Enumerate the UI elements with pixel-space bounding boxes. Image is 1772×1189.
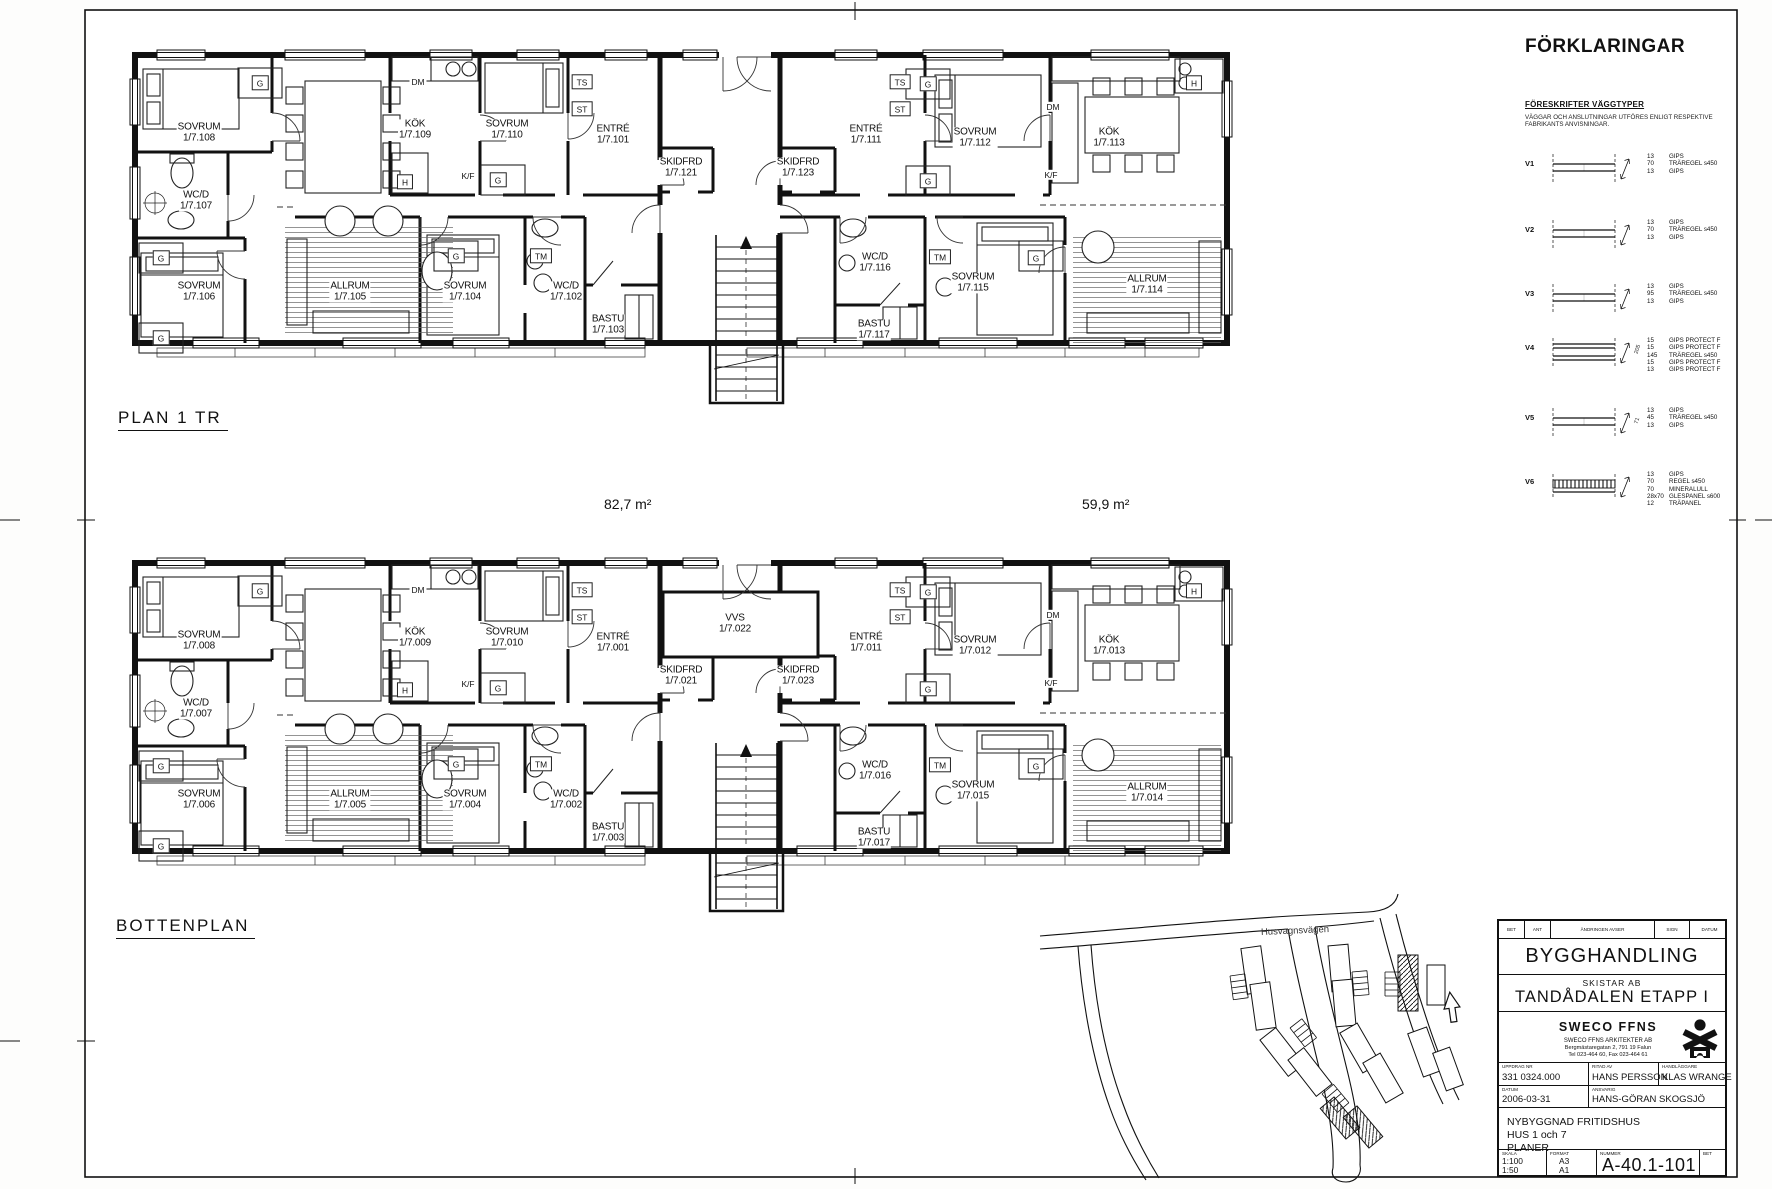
- handlaggare-label: HANDLÄGGARE: [1662, 1064, 1697, 1069]
- room-number: 1/7.001: [597, 643, 630, 654]
- wall-dim: [1636, 223, 1639, 233]
- room-name: WC/D: [180, 190, 212, 201]
- wall-layers: 15GIPS PROTECT F15GIPS PROTECT F145TRÄRE…: [1647, 334, 1720, 373]
- description-line2: HUS 1 och 7: [1507, 1129, 1640, 1142]
- nummer-value: A-40.1-101: [1602, 1155, 1696, 1176]
- room-label: ALLRUM1/7.005: [329, 789, 370, 810]
- room-name: BASTU: [858, 827, 890, 838]
- room-number: 1/7.117: [858, 330, 890, 341]
- wall-layers: 13GIPS45TRÄREGEL s45013GIPS: [1647, 404, 1717, 429]
- wall-type-id: V4: [1525, 334, 1545, 352]
- room-name: SKIDFRD: [660, 157, 703, 168]
- legend-section-title: FÖRESKRIFTER VÄGGTYPER: [1525, 100, 1644, 109]
- firm-name: SWECO FFNS ARKITEKTER AB: [1539, 1038, 1677, 1044]
- legend-note: VÄGGAR OCH ANSLUTNINGAR UTFÖRES ENLIGT R…: [1525, 114, 1713, 128]
- room-name: WC/D: [550, 789, 582, 800]
- fixture-tag-g: G: [252, 75, 269, 90]
- project-row: SKISTAR AB TANDÅDALEN ETAPP I: [1499, 975, 1725, 1012]
- room-label: WC/D1/7.102: [549, 281, 583, 302]
- room-name: BASTU: [858, 319, 890, 330]
- wall-type-row: V213GIPS70TRÄREGEL s45013GIPS: [1525, 216, 1717, 254]
- ansvarig-value: HANS-GÖRAN SKOGSJÖ: [1592, 1094, 1705, 1105]
- fixture-tag-tm: TM: [929, 249, 951, 264]
- room-label: WC/D1/7.107: [179, 190, 213, 211]
- wall-dim: [1636, 475, 1639, 485]
- uppdrag-value: 331 0324.000: [1502, 1072, 1560, 1083]
- room-name: SKIDFRD: [777, 665, 820, 676]
- architectural-drawing-sheet: { "plans": [ { "title": "PLAN 1 TR", "ro…: [0, 0, 1772, 1184]
- room-label: BASTU1/7.003: [591, 822, 625, 843]
- room-number: 1/7.002: [550, 800, 582, 811]
- room-number: 1/7.108: [178, 133, 221, 144]
- wall-section-symbol: [1545, 280, 1633, 318]
- room-label: SKIDFRD1/7.023: [776, 665, 821, 686]
- room-number: 1/7.017: [858, 838, 890, 849]
- fixture-tag-g: G: [920, 76, 937, 91]
- fixture-tag-dm: DM: [1044, 610, 1061, 620]
- fixture-tag-dm: DM: [409, 585, 426, 595]
- fixture-tag-tm: TM: [530, 756, 552, 771]
- room-name: KÖK: [399, 119, 431, 130]
- wall-type-row: V113GIPS70TRÄREGEL s45013GIPS: [1525, 150, 1717, 188]
- room-name: SOVRUM: [954, 635, 997, 646]
- fixture-tag-g: G: [920, 681, 937, 696]
- fixture-tag-kf: K/F: [459, 679, 476, 689]
- wall-dim: 205: [1634, 343, 1643, 354]
- room-number: 1/7.116: [859, 263, 890, 274]
- room-number: 1/7.101: [597, 135, 630, 146]
- fixture-tag-g: G: [920, 584, 937, 599]
- room-name: SKIDFRD: [660, 665, 703, 676]
- room-label: BASTU1/7.103: [591, 314, 625, 335]
- area-right: 59,9 m²: [1082, 496, 1129, 512]
- room-name: SOVRUM: [178, 630, 221, 641]
- wall-type-id: V2: [1525, 216, 1545, 234]
- room-name: KÖK: [399, 627, 431, 638]
- room-name: WC/D: [180, 698, 212, 709]
- wall-layer: 12TRÄPANEL: [1647, 500, 1720, 507]
- room-label: ENTRÉ1/7.111: [849, 124, 884, 145]
- fixture-tag-h: H: [1186, 583, 1202, 598]
- room-name: ENTRÉ: [850, 124, 883, 135]
- stage-label: BYGGHANDLING: [1499, 939, 1725, 968]
- room-name: BASTU: [592, 314, 624, 325]
- rev-col-datum: DATUM: [1702, 927, 1718, 932]
- fixture-tag-tm: TM: [530, 248, 552, 263]
- wall-layer: 13GIPS: [1647, 219, 1717, 226]
- rev-col-sign: SIGN: [1666, 927, 1677, 932]
- room-label: KÖK1/7.013: [1092, 635, 1126, 656]
- room-number: 1/7.104: [444, 292, 487, 303]
- firm-row: SWECO FFNS SWECO FFNS ARKITEKTER AB Berg…: [1499, 1012, 1725, 1063]
- ritad-value: HANS PERSSON: [1592, 1072, 1668, 1083]
- rev-col-andringen: ÄNDRINGEN AVSER: [1581, 927, 1625, 932]
- room-name: SOVRUM: [486, 119, 529, 130]
- fixture-tag-g: G: [448, 756, 465, 771]
- wall-layer: 15GIPS PROTECT F: [1647, 337, 1720, 344]
- room-label: SOVRUM1/7.012: [953, 635, 998, 656]
- wall-type-row: V613GIPS70REGEL s45070MINERALULL28x70GLE…: [1525, 468, 1720, 507]
- wall-section-symbol: [1545, 150, 1633, 188]
- room-name: SOVRUM: [178, 122, 221, 133]
- room-label: KÖK1/7.109: [398, 119, 432, 140]
- room-label: SKIDFRD1/7.121: [659, 157, 704, 178]
- fixture-tag-st: ST: [572, 101, 593, 116]
- room-label: SKIDFRD1/7.021: [659, 665, 704, 686]
- wall-layer: 28x70GLESPANEL s600: [1647, 493, 1720, 500]
- room-label: ALLRUM1/7.114: [1126, 274, 1167, 295]
- legend-note-line2: FABRIKANTS ANVISNINGAR.: [1525, 121, 1713, 128]
- room-number: 1/7.106: [178, 292, 221, 303]
- stage-row: BYGGHANDLING: [1499, 939, 1725, 975]
- revision-header-row: BET ANT ÄNDRINGEN AVSER SIGN DATUM: [1499, 921, 1725, 939]
- room-name: ALLRUM: [330, 281, 369, 292]
- room-name: SOVRUM: [952, 780, 995, 791]
- skala-value-2: 1:50: [1502, 1166, 1523, 1175]
- room-name: ALLRUM: [330, 789, 369, 800]
- room-name: SOVRUM: [954, 127, 997, 138]
- room-number: 1/7.114: [1127, 285, 1166, 296]
- plan1-title: PLAN 1 TR: [118, 408, 228, 431]
- room-name: ALLRUM: [1127, 274, 1166, 285]
- wall-layer: 70TRÄREGEL s450: [1647, 160, 1717, 167]
- fields-row-2: DATUM 2006-03-31 ANSVARIG HANS-GÖRAN SKO…: [1499, 1086, 1725, 1108]
- wall-layer: 13GIPS: [1647, 283, 1717, 290]
- wall-dim: [1636, 157, 1639, 167]
- room-label: ALLRUM1/7.014: [1126, 782, 1167, 803]
- fixture-tag-kf: K/F: [459, 171, 476, 181]
- room-label: BASTU1/7.017: [857, 827, 891, 848]
- fixture-tag-g: G: [448, 248, 465, 263]
- wall-section-symbol: [1545, 334, 1633, 372]
- room-number: 1/7.022: [719, 624, 751, 635]
- wall-layers: 13GIPS70REGEL s45070MINERALULL28x70GLESP…: [1647, 468, 1720, 507]
- room-name: ENTRÉ: [597, 124, 630, 135]
- fixture-tag-g: G: [153, 838, 170, 853]
- wall-layer: 95TRÄREGEL s450: [1647, 290, 1717, 297]
- wall-layer: 70TRÄREGEL s450: [1647, 226, 1717, 233]
- wall-dim: 71: [1634, 413, 1643, 424]
- room-number: 1/7.110: [486, 130, 529, 141]
- wall-layers: 13GIPS70TRÄREGEL s45013GIPS: [1647, 216, 1717, 241]
- room-number: 1/7.103: [592, 325, 624, 336]
- room-name: KÖK: [1093, 635, 1125, 646]
- datum-value: 2006-03-31: [1502, 1094, 1551, 1105]
- room-name: SOVRUM: [444, 789, 487, 800]
- fixture-tag-g: G: [153, 250, 170, 265]
- room-label: SOVRUM1/7.006: [177, 789, 222, 810]
- room-number: 1/7.107: [180, 201, 212, 212]
- fixture-tag-ts: TS: [572, 582, 593, 597]
- wall-layer: 13GIPS PROTECT F: [1647, 366, 1720, 373]
- wall-layers: 13GIPS70TRÄREGEL s45013GIPS: [1647, 150, 1717, 175]
- room-number: 1/7.004: [444, 800, 487, 811]
- wall-dim: [1636, 287, 1639, 297]
- room-number: 1/7.111: [850, 135, 883, 146]
- room-name: VVS: [719, 613, 751, 624]
- fixture-tag-dm: DM: [409, 77, 426, 87]
- room-label: WC/D1/7.002: [549, 789, 583, 810]
- room-number: 1/7.014: [1127, 793, 1166, 804]
- project-name: TANDÅDALEN ETAPP I: [1499, 988, 1725, 1007]
- room-number: 1/7.015: [952, 791, 995, 802]
- firm-address: Bergmästaregatan 2, 791 19 Falun: [1539, 1045, 1677, 1051]
- fixture-tag-g: G: [1028, 758, 1045, 773]
- fixture-tag-st: ST: [890, 101, 911, 116]
- room-name: SKIDFRD: [777, 157, 820, 168]
- room-number: 1/7.006: [178, 800, 221, 811]
- wall-type-row: V420515GIPS PROTECT F15GIPS PROTECT F145…: [1525, 334, 1720, 373]
- firm-phone: Tel 023-464 60, Fax 023-464 61: [1539, 1052, 1677, 1058]
- room-label: SOVRUM1/7.106: [177, 281, 222, 302]
- wall-layer: 15GIPS PROTECT F: [1647, 359, 1720, 366]
- fixture-tag-kf: K/F: [1042, 170, 1059, 180]
- room-name: BASTU: [592, 822, 624, 833]
- wall-layer: 13GIPS: [1647, 298, 1717, 305]
- room-label: ENTRÉ1/7.011: [849, 632, 884, 653]
- ansvarig-label: ANSVARIG: [1592, 1087, 1615, 1092]
- fixture-tag-st: ST: [572, 609, 593, 624]
- firm-logo-text: SWECO FFNS: [1539, 1020, 1677, 1034]
- room-label: VVS1/7.022: [718, 613, 752, 634]
- wall-section-symbol: [1545, 216, 1633, 254]
- fixture-tag-h: H: [397, 174, 413, 189]
- legend-note-line1: VÄGGAR OCH ANSLUTNINGAR UTFÖRES ENLIGT R…: [1525, 114, 1713, 121]
- wall-type-id: V6: [1525, 468, 1545, 486]
- room-name: KÖK: [1093, 127, 1124, 138]
- room-number: 1/7.005: [330, 800, 369, 811]
- rev-col-bet: BET: [1507, 927, 1516, 932]
- sweco-logo-icon: [1680, 1018, 1720, 1060]
- rev-col-ant: ANT: [1533, 927, 1542, 932]
- room-number: 1/7.007: [180, 709, 212, 720]
- wall-layer: 13GIPS: [1647, 168, 1717, 175]
- room-name: WC/D: [859, 252, 890, 263]
- fixture-tag-g: G: [153, 330, 170, 345]
- fixture-tag-dm: DM: [1044, 102, 1061, 112]
- room-number: 1/7.112: [954, 138, 997, 149]
- bet-label: BET: [1703, 1151, 1712, 1156]
- room-label: SOVRUM1/7.115: [951, 272, 996, 293]
- wall-section-symbol: [1545, 404, 1633, 442]
- wall-type-id: V3: [1525, 280, 1545, 298]
- room-label: KÖK1/7.113: [1092, 127, 1125, 148]
- room-number: 1/7.009: [399, 638, 431, 649]
- fixture-tag-tm: TM: [929, 757, 951, 772]
- room-name: ENTRÉ: [850, 632, 883, 643]
- room-name: SOVRUM: [444, 281, 487, 292]
- fixture-tag-g: G: [1028, 250, 1045, 265]
- room-number: 1/7.016: [859, 771, 891, 782]
- description-row: NYBYGGNAD FRITIDSHUS HUS 1 och 7 PLANER: [1499, 1108, 1725, 1150]
- fixture-tag-ts: TS: [890, 582, 911, 597]
- wall-layers: 13GIPS95TRÄREGEL s45013GIPS: [1647, 280, 1717, 305]
- room-name: SOVRUM: [952, 272, 995, 283]
- room-name: SOVRUM: [486, 627, 529, 638]
- room-name: ENTRÉ: [597, 632, 630, 643]
- room-label: WC/D1/7.007: [179, 698, 213, 719]
- fixture-tag-g: G: [252, 583, 269, 598]
- client-name: SKISTAR AB: [1499, 975, 1725, 988]
- wall-type-id: V5: [1525, 404, 1545, 422]
- room-number: 1/7.011: [850, 643, 883, 654]
- fixture-tag-g: G: [490, 172, 507, 187]
- room-label: SOVRUM1/7.108: [177, 122, 222, 143]
- title-block: BET ANT ÄNDRINGEN AVSER SIGN DATUM BYGGH…: [1497, 919, 1727, 1177]
- room-number: 1/7.021: [660, 676, 703, 687]
- wall-layer: 13GIPS: [1647, 234, 1717, 241]
- room-label: SOVRUM1/7.112: [953, 127, 998, 148]
- wall-layer: 145TRÄREGEL s450: [1647, 352, 1720, 359]
- handlaggare-value: KLAS WRANGE: [1662, 1072, 1732, 1083]
- room-label: SOVRUM1/7.010: [485, 627, 530, 648]
- room-number: 1/7.115: [952, 283, 995, 294]
- wall-layer: 15GIPS PROTECT F: [1647, 344, 1720, 351]
- wall-layer: 13GIPS: [1647, 407, 1717, 414]
- uppdrag-label: UPPDRAG NR: [1502, 1064, 1533, 1069]
- room-label: ENTRÉ1/7.001: [596, 632, 631, 653]
- room-number: 1/7.109: [399, 130, 431, 141]
- room-name: SOVRUM: [178, 281, 221, 292]
- room-number: 1/7.102: [550, 292, 582, 303]
- room-number: 1/7.023: [777, 676, 820, 687]
- wall-type-row: V57113GIPS45TRÄREGEL s45013GIPS: [1525, 404, 1717, 442]
- fixture-tag-st: ST: [890, 609, 911, 624]
- room-name: WC/D: [550, 281, 582, 292]
- number-row: SKALA 1:100 1:50 FORMAT A3 A1 NUMMER A-4…: [1499, 1150, 1725, 1177]
- room-label: WC/D1/7.116: [858, 252, 891, 273]
- room-label: ENTRÉ1/7.101: [596, 124, 631, 145]
- room-number: 1/7.010: [486, 638, 529, 649]
- wall-layer: 13GIPS: [1647, 471, 1720, 478]
- room-label: SOVRUM1/7.015: [951, 780, 996, 801]
- room-label: SOVRUM1/7.104: [443, 281, 488, 302]
- fixture-tag-g: G: [153, 758, 170, 773]
- fixture-tag-h: H: [1186, 75, 1202, 90]
- room-number: 1/7.121: [660, 168, 703, 179]
- room-label: SKIDFRD1/7.123: [776, 157, 821, 178]
- room-name: SOVRUM: [178, 789, 221, 800]
- fixture-tag-g: G: [490, 680, 507, 695]
- wall-layer: 45TRÄREGEL s450: [1647, 414, 1717, 421]
- room-number: 1/7.008: [178, 641, 221, 652]
- fields-row-1: UPPDRAG NR 331 0324.000 RITAD AV HANS PE…: [1499, 1063, 1725, 1086]
- fixture-tag-kf: K/F: [1042, 678, 1059, 688]
- room-number: 1/7.123: [777, 168, 820, 179]
- room-label: WC/D1/7.016: [858, 760, 892, 781]
- room-number: 1/7.113: [1093, 138, 1124, 149]
- room-label: SOVRUM1/7.004: [443, 789, 488, 810]
- area-left: 82,7 m²: [604, 496, 651, 512]
- wall-type-row: V313GIPS95TRÄREGEL s45013GIPS: [1525, 280, 1717, 318]
- room-label: SOVRUM1/7.110: [485, 119, 530, 140]
- room-label: BASTU1/7.117: [857, 319, 891, 340]
- room-name: ALLRUM: [1127, 782, 1166, 793]
- wall-layer: 13GIPS: [1647, 153, 1717, 160]
- wall-layer: 70REGEL s450: [1647, 478, 1720, 485]
- legend-title: FÖRKLARINGAR: [1525, 36, 1685, 58]
- wall-section-symbol: [1545, 468, 1633, 506]
- wall-type-id: V1: [1525, 150, 1545, 168]
- wall-layer: 70MINERALULL: [1647, 486, 1720, 493]
- room-number: 1/7.105: [330, 292, 369, 303]
- room-name: WC/D: [859, 760, 891, 771]
- format-value-2: A1: [1559, 1166, 1569, 1175]
- room-number: 1/7.012: [954, 646, 997, 657]
- datum-label: DATUM: [1502, 1087, 1518, 1092]
- fixture-tag-ts: TS: [572, 74, 593, 89]
- fixture-tag-g: G: [920, 173, 937, 188]
- wall-layer: 13GIPS: [1647, 422, 1717, 429]
- room-number: 1/7.013: [1093, 646, 1125, 657]
- fixture-tag-h: H: [397, 682, 413, 697]
- room-label: ALLRUM1/7.105: [329, 281, 370, 302]
- room-label: KÖK1/7.009: [398, 627, 432, 648]
- ritad-label: RITAD AV: [1592, 1064, 1612, 1069]
- fixture-tag-ts: TS: [890, 74, 911, 89]
- room-number: 1/7.003: [592, 833, 624, 844]
- room-label: SOVRUM1/7.008: [177, 630, 222, 651]
- bottenplan-title: BOTTENPLAN: [116, 916, 255, 939]
- description-line1: NYBYGGNAD FRITIDSHUS: [1507, 1116, 1640, 1129]
